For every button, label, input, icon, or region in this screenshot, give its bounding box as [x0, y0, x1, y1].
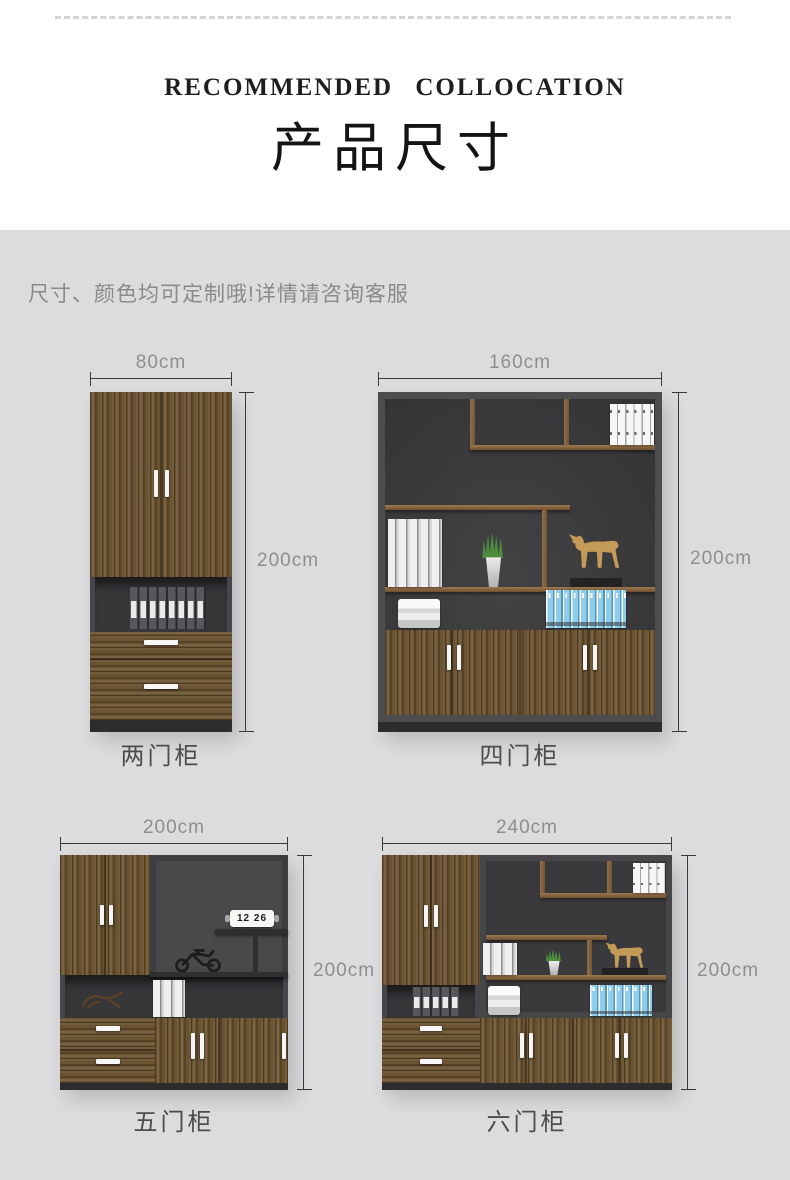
- cab4-lower-door-seam-2: [572, 1018, 574, 1083]
- cab1-door-seam: [160, 392, 162, 577]
- cab1-drawers: [90, 632, 232, 720]
- cab4-drawer-handle-bottom: [420, 1059, 442, 1064]
- cab3-door-handle-left: [100, 905, 104, 925]
- cab4-width-dim-line: [382, 843, 672, 844]
- cab4-height-dim-line: [687, 855, 688, 1090]
- cab3-drawer-handle-top: [96, 1026, 120, 1031]
- cab3-door-seam: [104, 855, 106, 975]
- cab1-door-handle-left: [154, 470, 158, 497]
- cab2-mid-post: [542, 510, 547, 587]
- cab2-door-seam-3: [587, 630, 589, 722]
- customization-note: 尺寸、颜色均可定制哦!详情请咨询客服: [28, 278, 409, 308]
- cab3-books-white: [153, 980, 185, 1017]
- cab2-horse-figurine: [567, 524, 623, 578]
- cab2-door-handle-2: [457, 645, 461, 670]
- cab2-top-divider-right: [564, 399, 569, 450]
- cab4-display-shelf: [486, 975, 666, 980]
- cab4-height-label: 200cm: [697, 960, 759, 982]
- cab3-shelf-post: [253, 934, 258, 972]
- cab4-lower-door-handle-1: [520, 1033, 524, 1058]
- cab3-lower-door-handle-2: [200, 1033, 204, 1059]
- cab2-height-label: 200cm: [690, 548, 752, 570]
- cab1-open-compartment: [90, 577, 232, 632]
- cab4-drawer-handle-top: [420, 1026, 442, 1031]
- cab4-door-handle-right: [434, 905, 438, 927]
- cab4-plinth: [382, 1083, 672, 1090]
- cab3-lower-door-handle-3: [282, 1033, 286, 1059]
- cab2-door-handle-1: [447, 645, 451, 670]
- cab4-lower-doors: [480, 1018, 672, 1083]
- cab1-drawer-seam: [90, 658, 232, 660]
- cab4-lower-door-handle-3: [615, 1033, 619, 1058]
- cab3-motorcycle-figurine: [172, 944, 224, 972]
- cab2-top-shelf: [470, 445, 655, 450]
- cab4-open-compartment: [382, 985, 480, 1018]
- cab4-wood-doors: [382, 855, 480, 985]
- cab2-plant: [480, 532, 507, 587]
- cab4-lower-door-seam-1: [525, 1018, 527, 1083]
- cab4-binders-blue: [590, 985, 652, 1016]
- cab2-binders-blue: [546, 590, 626, 628]
- cab4-mid-post: [587, 940, 592, 975]
- cab3-height-dim-line: [303, 855, 304, 1090]
- cab3-plinth: [60, 1083, 288, 1090]
- cab3-display-shelf: [150, 972, 288, 977]
- cab3-width-label: 200cm: [60, 817, 288, 839]
- cab4-lower-door-seam-3: [619, 1018, 621, 1083]
- cabinet-four-door: [378, 392, 662, 732]
- cab3-lower-doors: [155, 1018, 288, 1083]
- cab3-drawers: [60, 1018, 155, 1083]
- cab2-name: 四门柜: [378, 736, 662, 771]
- cab2-horse-base: [570, 578, 622, 587]
- cab2-height-dim-line: [678, 392, 679, 732]
- cab4-drawers: [382, 1018, 480, 1083]
- cab1-drawer-handle-bottom: [144, 684, 178, 689]
- cab3-clock-shelf: [215, 929, 288, 934]
- cab3-height-label: 200cm: [313, 960, 375, 982]
- title-chinese: 产品尺寸: [0, 106, 790, 182]
- cab1-drawer-handle-top: [144, 640, 178, 645]
- cab2-door-seam-1: [451, 630, 453, 722]
- cab3-flip-clock: 12 26: [230, 910, 274, 927]
- cab3-drawer-handle-bottom: [96, 1059, 120, 1064]
- cab4-binders-dark: [413, 987, 459, 1016]
- cab2-top-divider-left: [470, 399, 475, 450]
- cabinet-six-door: [382, 855, 672, 1090]
- cab3-ant-figurine: [75, 983, 130, 1013]
- cab2-printer: [398, 599, 440, 628]
- cab2-door-handle-4: [593, 645, 597, 670]
- cab2-door-handle-3: [583, 645, 587, 670]
- cab3-lower-door-handle-1: [191, 1033, 195, 1059]
- cab3-wood-doors: [60, 855, 150, 975]
- cab2-plinth: [378, 722, 662, 732]
- cab2-width-label: 160cm: [378, 352, 662, 374]
- cab2-binders-white: [610, 404, 654, 445]
- product-dimension-page: RECOMMENDED COLLOCATION 产品尺寸 尺寸、颜色均可定制哦!…: [0, 0, 790, 1180]
- cab3-lower-door-seam: [218, 1018, 220, 1083]
- cabinet-two-door: [90, 392, 232, 732]
- cab4-binders-white: [633, 863, 665, 893]
- cab4-horse-figurine: [600, 941, 650, 969]
- cab4-width-label: 240cm: [382, 817, 672, 839]
- cab2-wood-doors: [385, 630, 655, 722]
- cab1-height-dim-line: [245, 392, 246, 732]
- cab4-printer: [488, 986, 520, 1015]
- title-english: RECOMMENDED COLLOCATION: [0, 74, 790, 102]
- cab1-height-label: 200cm: [257, 550, 319, 572]
- cab4-name: 六门柜: [382, 1102, 672, 1137]
- cab3-name: 五门柜: [60, 1102, 288, 1137]
- cab4-lower-door-handle-2: [529, 1033, 533, 1058]
- cab4-top-shelf: [540, 893, 666, 898]
- dashed-divider: [55, 16, 731, 19]
- cab4-lower-door-handle-4: [624, 1033, 628, 1058]
- cab3-width-dim-line: [60, 843, 288, 844]
- cab4-door-seam: [430, 855, 432, 985]
- cab2-books-white: [388, 519, 442, 587]
- cab2-width-dim-line: [378, 378, 662, 379]
- cab1-width-dim-line: [90, 378, 232, 379]
- cab2-door-seam-2: [519, 630, 521, 722]
- cab1-width-label: 80cm: [90, 352, 232, 374]
- cabinet-five-door: 12 26: [60, 855, 288, 1090]
- cab4-books-white: [483, 943, 517, 975]
- cab1-door-handle-right: [165, 470, 169, 497]
- cab3-drawer-seam: [60, 1049, 155, 1051]
- cab3-door-handle-right: [109, 905, 113, 925]
- cab1-plinth: [90, 720, 232, 732]
- cab4-horse-base: [602, 968, 648, 975]
- cab1-binders-dark: [130, 587, 206, 629]
- header-section: RECOMMENDED COLLOCATION 产品尺寸: [0, 0, 790, 230]
- cab4-drawer-seam: [382, 1049, 480, 1051]
- cab1-name: 两门柜: [90, 736, 232, 771]
- cab4-door-handle-left: [424, 905, 428, 927]
- cab4-plant: [544, 949, 564, 975]
